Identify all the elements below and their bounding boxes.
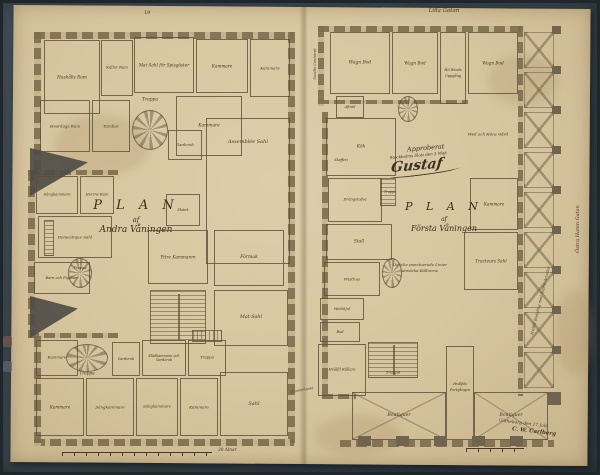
room-label: Mat Sahl för Spisgäster: [137, 62, 192, 67]
arcade-pillar: [552, 306, 561, 314]
room: Boutiquer: [352, 392, 446, 440]
room: Wedskjul: [320, 298, 364, 320]
room-label: Kammare: [199, 63, 246, 68]
room: Mat Sahl för Spisgäster: [134, 37, 194, 93]
room-label: Kök: [329, 144, 393, 150]
arcade-vault: [524, 112, 554, 148]
room: Förmak: [214, 230, 284, 286]
room: Kammare: [180, 378, 218, 436]
room-label: Wagn Bod: [333, 60, 388, 66]
room-label: Bod: [322, 330, 358, 334]
room: [446, 346, 474, 440]
staircase: [192, 330, 222, 342]
room-label: Kammare: [182, 405, 216, 410]
room: Yttre Kammaren: [148, 230, 208, 284]
plan-annotation: Hvälfda: [453, 382, 466, 386]
outer-wall: [28, 333, 118, 338]
right-title-af: af: [392, 216, 496, 223]
room: Sahl: [220, 372, 288, 436]
scale-label: 30 Alnar: [218, 448, 237, 453]
plan-annotation: Skafferi: [334, 158, 348, 162]
room-label: Sängkammare: [88, 405, 131, 410]
room: Kammare: [36, 378, 84, 436]
room: Bod: [320, 322, 360, 342]
plan-annotation: Trappa: [384, 190, 396, 194]
roof-wedge: [30, 296, 78, 338]
left-plan-title: P L A N af Andra Våningen: [70, 198, 202, 235]
arcade-pillar: [510, 436, 523, 446]
room: Klädkammare och Garderob: [142, 340, 186, 376]
room: Trappa: [188, 340, 226, 376]
room-label: Wedskjul: [322, 307, 361, 311]
plan-annotation: Trappa: [142, 98, 158, 103]
room-label: Stall: [329, 239, 389, 245]
scale-bar-left: [62, 452, 212, 456]
room-label: Sahl: [223, 401, 285, 407]
room-label: Tambur: [94, 124, 128, 129]
right-plan-title: P L A N af Första Våningen: [392, 200, 496, 233]
room: Källar Rum: [101, 40, 133, 96]
room-label: Wagn Bod: [394, 60, 435, 65]
room: Tambur: [92, 100, 130, 152]
outer-wall: [518, 26, 523, 396]
room-label: Trappa: [190, 356, 224, 361]
room-label: Wisthus: [327, 277, 378, 282]
plan-annotation: Hö Winds: [444, 68, 461, 72]
outer-wall: [34, 439, 294, 446]
arcade-pillar: [548, 392, 561, 405]
room: Sängkammare: [86, 378, 134, 436]
left-title-floor: Andra Våningen: [70, 225, 202, 235]
cellar-note: De icke punctuerade Linier utmärka Källr…: [378, 262, 462, 274]
room-label: Wagn Bod: [470, 60, 515, 65]
plan-annotation: Trappa: [73, 266, 86, 270]
arcade-pillar: [396, 436, 409, 446]
arcade-pillar: [358, 436, 371, 446]
room-label: Boutiquer: [477, 413, 545, 419]
room: Wagn Bod: [330, 32, 390, 94]
arcade-pillar: [552, 106, 561, 114]
lot-number: 19: [144, 10, 150, 16]
room: Mat-Sahl: [214, 290, 288, 346]
room: Hvälfd Källare: [318, 344, 366, 396]
staircase: [398, 96, 418, 122]
arcade-pillar: [552, 186, 561, 194]
room: Kammare: [250, 39, 290, 97]
street-label-right: Östra Hamn Gatan: [575, 185, 581, 273]
plan-annotation: Uppgång: [445, 74, 461, 78]
room: Sängkammare: [136, 378, 178, 436]
left-title-af: af: [70, 216, 202, 224]
room-label: Mat-Sahl: [217, 315, 285, 321]
staircase: [66, 344, 108, 372]
room-label: Garderob: [114, 357, 138, 361]
room-label: Assemblée Sahl: [209, 139, 286, 145]
arcade-vault: [524, 32, 554, 68]
staircase: [68, 258, 92, 288]
room-label: Hvardags Rum: [42, 124, 87, 129]
room: Garderob: [168, 130, 202, 160]
room-label: Kammare: [38, 404, 81, 409]
plan-annotation: Portgången: [450, 388, 470, 392]
room: Kök: [326, 118, 396, 176]
room: Garderob: [112, 342, 140, 376]
room: Drängstufva: [328, 178, 382, 222]
room-label: Förmak: [217, 255, 281, 261]
right-title-word: P L A N: [392, 200, 496, 213]
arcade-pillar: [434, 436, 447, 446]
room: Wisthus: [324, 262, 380, 296]
scale-bar-right: [466, 448, 524, 452]
staircase: [44, 220, 54, 256]
arcade-vault: [524, 152, 554, 188]
room-label: Klädkammare och Garderob: [144, 354, 183, 363]
plan-annotation: Trappa: [386, 370, 400, 375]
room-label: Sängkammare: [138, 405, 176, 410]
staircase: [132, 110, 168, 150]
room: Tracteurs Sahl: [464, 232, 518, 290]
arcade-pillar: [552, 346, 561, 354]
arcade-pillar: [552, 66, 561, 74]
room-label: Yttre Kammaren: [151, 254, 206, 259]
arcade-pillar: [552, 266, 561, 274]
arcade-vault: [524, 352, 554, 388]
room-label: Drängstufva: [331, 198, 380, 203]
room: Wagn Bod: [468, 32, 518, 94]
arcade-pillar: [472, 436, 485, 446]
room-label: Hvälfd Källare: [320, 368, 363, 373]
arcade-vault: [524, 72, 554, 108]
left-boundary-annotation: Sundts Contoiret: [313, 33, 317, 95]
room: Wagn Bod: [392, 32, 438, 94]
arcade-pillar: [552, 146, 561, 154]
room-label: Boutiquer: [356, 413, 442, 419]
room-label: Herrns Rum: [82, 193, 112, 198]
room-label: Källar Rum: [103, 66, 131, 71]
room: Afträd: [336, 96, 364, 118]
room-label: Garderob: [170, 143, 200, 147]
framed-drawing: Hushålls RumKällar RumMat Sahl för Spisg…: [0, 0, 600, 475]
room-label: Sängkammare: [38, 193, 76, 198]
left-title-word: P L A N: [70, 198, 202, 213]
right-title-floor: Första Våningen: [392, 224, 496, 233]
room-label: Tracteurs Sahl: [467, 258, 516, 263]
cellar-note-line2: utmärka Källrarne: [378, 268, 462, 274]
room: Hvardags Rum: [40, 100, 90, 152]
street-label-top: Lilla Gatan: [398, 8, 490, 14]
outer-wall: [318, 26, 324, 106]
room-label: Afträd: [338, 105, 362, 109]
room-label: Hushålls Rum: [47, 74, 98, 79]
arcade-pillar: [552, 226, 561, 234]
room: Kammare: [196, 39, 248, 93]
arcade-pillar: [552, 26, 561, 34]
plan-drawing-layer: Hushålls RumKällar RumMat Sahl för Spisg…: [0, 0, 600, 475]
room: Stall: [326, 224, 392, 260]
arcade-vault: [524, 192, 554, 228]
plan-annotation: Trappa: [79, 371, 94, 376]
plan-annotation: Wed och Höns Gård: [468, 132, 508, 137]
room-label: Kammare: [252, 66, 288, 71]
